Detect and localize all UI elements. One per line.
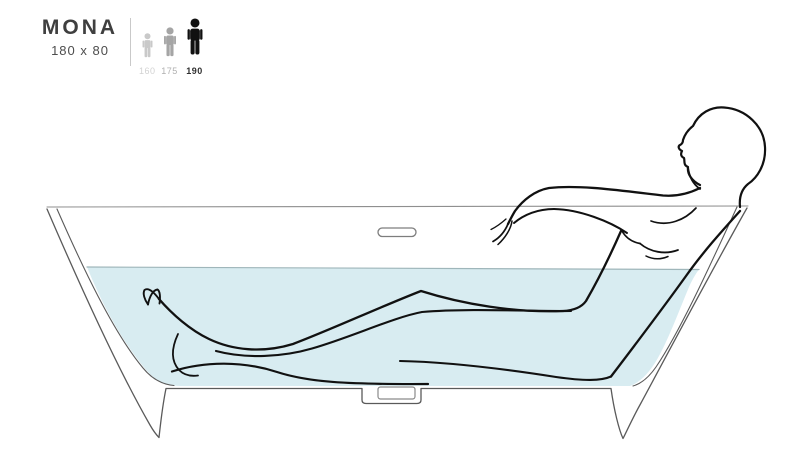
height-option-label: 160 [139, 66, 156, 76]
product-header: MONA 180 x 80 160 175 190 [38, 16, 206, 76]
person-190-icon [184, 18, 206, 63]
overflow-drain [378, 228, 416, 237]
water-fill [87, 267, 699, 386]
drain-fitting [378, 387, 415, 399]
product-title-block: MONA 180 x 80 [38, 16, 122, 58]
height-option-160: 160 [139, 33, 156, 76]
height-option-175: 175 [161, 27, 179, 76]
height-fit-legend: 160 175 190 [139, 16, 206, 76]
header-divider [130, 18, 131, 66]
product-name: MONA [38, 16, 122, 40]
height-option-190: 190 [184, 18, 206, 76]
height-option-label: 175 [161, 66, 178, 76]
person-160-icon [140, 33, 155, 63]
product-diagram: MONA 180 x 80 160 175 190 [0, 0, 800, 464]
person-175-icon [161, 27, 179, 63]
product-dimensions: 180 x 80 [38, 43, 122, 58]
height-option-label: 190 [186, 66, 203, 76]
